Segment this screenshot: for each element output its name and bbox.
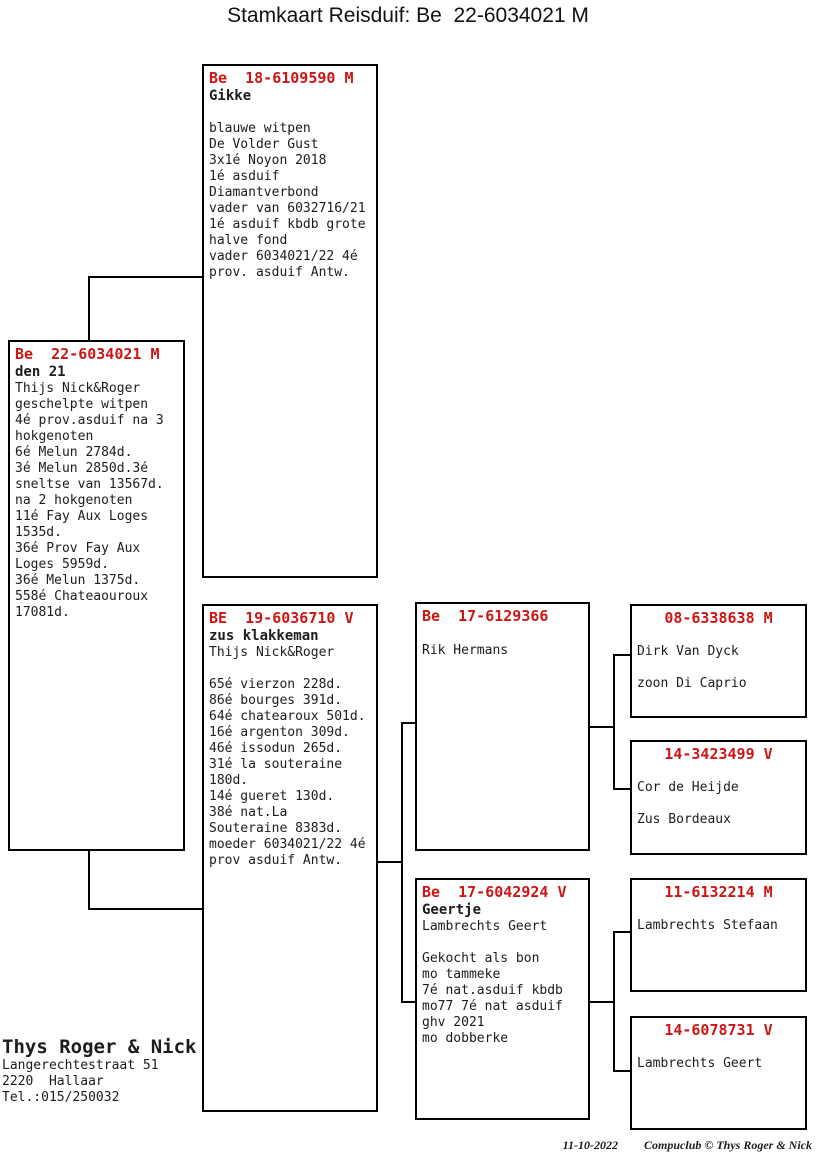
pedigree-box-subject: Be 22-6034021 M den 21 Thijs Nick&Rogerg… [8, 340, 185, 851]
connector-to-ggf-maternal [613, 931, 630, 933]
pedigree-text-line: 3x1é Noyon 2018 [209, 153, 376, 169]
bird-name [417, 626, 588, 643]
pedigree-text-line [209, 661, 376, 677]
pedigree-text-line: Gekocht als bon [422, 951, 588, 967]
connector-to-ggm-paternal [613, 788, 630, 790]
pedigree-text-line: blauwe witpen [209, 121, 376, 137]
bird-notes: Rik Hermans [417, 643, 588, 659]
pedigree-text-line: 558é Chateaouroux [15, 589, 183, 605]
ring-number: Be 22-6034021 M [10, 342, 183, 364]
pedigree-text-line [637, 764, 805, 780]
pedigree-text-line: Thijs Nick&Roger [15, 381, 183, 397]
pedigree-box-ggm-maternal: 14-6078731 V Lambrechts Geert [630, 1016, 807, 1130]
pedigree-box-ggm-paternal: 14-3423499 V Cor de Heijde Zus Bordeaux [630, 740, 807, 855]
connector-to-grandmother [401, 1001, 415, 1003]
ring-number: Be 17-6042924 V [417, 880, 588, 902]
pedigree-text-line: Rik Hermans [422, 643, 588, 659]
connector-grandmother-stub [590, 1001, 615, 1003]
ring-number: 14-3423499 V [632, 742, 805, 764]
bird-name: zus klakkeman [204, 628, 376, 645]
pedigree-text-line: Lambrechts Geert [637, 1056, 805, 1072]
bird-name: den 21 [10, 364, 183, 381]
connector-grandfather-vertical [613, 654, 615, 790]
pedigree-text-line: 7é nat.asduif kbdb [422, 983, 588, 999]
pedigree-text-line: sneltse van 13567d. [15, 477, 183, 493]
pedigree-box-ggf-paternal: 08-6338638 M Dirk Van Dyck zoon Di Capri… [630, 604, 807, 718]
pedigree-text-line: 14é gueret 130d. [209, 789, 376, 805]
connector-to-ggf-paternal [613, 654, 630, 656]
pedigree-box-mother: BE 19-6036710 V zus klakkeman Thijs Nick… [202, 604, 378, 1112]
bird-name: Gikke [204, 88, 376, 105]
pedigree-text-line: Souteraine 8383d. [209, 821, 376, 837]
pedigree-text-line [209, 105, 376, 121]
pedigree-text-line: 16é argenton 309d. [209, 725, 376, 741]
connector-grandmother-vertical [613, 931, 615, 1072]
ring-number: BE 19-6036710 V [204, 606, 376, 628]
connector-mother-horizontal [88, 908, 202, 910]
bird-notes: Cor de Heijde Zus Bordeaux [632, 764, 805, 828]
pedigree-text-line: 36é Prov Fay Aux [15, 541, 183, 557]
pedigree-text-line: Loges 5959d. [15, 557, 183, 573]
connector-father-horizontal [88, 276, 202, 278]
pedigree-text-line: 1535d. [15, 525, 183, 541]
pedigree-text-line: na 2 hokgenoten [15, 493, 183, 509]
pedigree-text-line: 180d. [209, 773, 376, 789]
bird-notes: Lambrechts Geert [632, 1040, 805, 1072]
pedigree-text-line: Dirk Van Dyck [637, 644, 805, 660]
pedigree-text-line [637, 660, 805, 676]
pedigree-box-maternal-grandmother: Be 17-6042924 V Geertje Lambrechts Geert… [415, 878, 590, 1120]
footer-credit: Compuclub © Thys Roger & Nick [644, 1138, 812, 1153]
pedigree-text-line [637, 1040, 805, 1056]
pedigree-text-line [637, 628, 805, 644]
pedigree-text-line: 36é Melun 1375d. [15, 573, 183, 589]
pedigree-text-line [637, 796, 805, 812]
bird-notes: blauwe witpenDe Volder Gust3x1é Noyon 20… [204, 105, 376, 281]
owner-block: Thys Roger & Nick Langerechtestraat 51 2… [2, 1036, 196, 1106]
pedigree-text-line: De Volder Gust [209, 137, 376, 153]
connector-to-grandfather [401, 722, 415, 724]
pedigree-text-line: halve fond [209, 233, 376, 249]
bird-notes: Dirk Van Dyck zoon Di Caprio [632, 628, 805, 692]
page-title: Stamkaart Reisduif: Be 22-6034021 M [0, 4, 816, 28]
connector-grandparents-stub [378, 861, 403, 863]
owner-address-line2: 2220 Hallaar [2, 1074, 196, 1090]
ring-number: Be 17-6129366 [417, 604, 588, 626]
pedigree-text-line [637, 902, 805, 918]
bird-notes: Thijs Nick&Rogergeschelpte witpen4é prov… [10, 381, 183, 621]
pedigree-box-ggf-maternal: 11-6132214 M Lambrechts Stefaan [630, 878, 807, 992]
pedigree-text-line: 4é prov.asduif na 3 [15, 413, 183, 429]
pedigree-text-line: 3é Melun 2850d.3é [15, 461, 183, 477]
pedigree-text-line: Lambrechts Geert [422, 919, 588, 935]
connector-father-vertical [88, 276, 90, 340]
pedigree-text-line: prov asduif Antw. [209, 853, 376, 869]
bird-notes: Thijs Nick&Roger 65é vierzon 228d.86é bo… [204, 645, 376, 869]
pedigree-card: Stamkaart Reisduif: Be 22-6034021 M Be 1… [0, 0, 816, 1172]
pedigree-text-line: 1é asduif [209, 169, 376, 185]
pedigree-text-line: 11é Fay Aux Loges [15, 509, 183, 525]
pedigree-text-line: Cor de Heijde [637, 780, 805, 796]
pedigree-text-line: geschelpte witpen [15, 397, 183, 413]
pedigree-text-line: 1é asduif kbdb grote [209, 217, 376, 233]
bird-notes: Lambrechts Geert Gekocht als bonmo tamme… [417, 919, 588, 1047]
pedigree-text-line: hokgenoten [15, 429, 183, 445]
pedigree-box-father: Be 18-6109590 M Gikke blauwe witpenDe Vo… [202, 64, 378, 578]
pedigree-text-line: 65é vierzon 228d. [209, 677, 376, 693]
pedigree-text-line: moeder 6034021/22 4é [209, 837, 376, 853]
pedigree-text-line: Lambrechts Stefaan [637, 918, 805, 934]
owner-name: Thys Roger & Nick [2, 1036, 196, 1058]
pedigree-text-line: 38é nat.La [209, 805, 376, 821]
connector-grandfather-stub [590, 726, 615, 728]
pedigree-text-line: ghv 2021 [422, 1015, 588, 1031]
ring-number: Be 18-6109590 M [204, 66, 376, 88]
ring-number: 11-6132214 M [632, 880, 805, 902]
pedigree-text-line: 31é la souteraine [209, 757, 376, 773]
connector-grandparents-vertical [401, 722, 403, 1003]
pedigree-text-line: mo tammeke [422, 967, 588, 983]
bird-name: Geertje [417, 902, 588, 919]
pedigree-text-line: 86é bourges 391d. [209, 693, 376, 709]
bird-notes: Lambrechts Stefaan [632, 902, 805, 934]
pedigree-text-line: zoon Di Caprio [637, 676, 805, 692]
connector-to-ggm-maternal [613, 1070, 630, 1072]
pedigree-box-maternal-grandfather: Be 17-6129366 Rik Hermans [415, 602, 590, 851]
owner-phone: Tel.:015/250032 [2, 1090, 196, 1106]
ring-number: 14-6078731 V [632, 1018, 805, 1040]
pedigree-text-line: Thijs Nick&Roger [209, 645, 376, 661]
pedigree-text-line: Zus Bordeaux [637, 812, 805, 828]
pedigree-text-line: vader van 6032716/21 [209, 201, 376, 217]
pedigree-text-line: 46é issodun 265d. [209, 741, 376, 757]
owner-address-line1: Langerechtestraat 51 [2, 1058, 196, 1074]
footer-date: 11-10-2022 [563, 1138, 618, 1153]
ring-number: 08-6338638 M [632, 606, 805, 628]
pedigree-text-line: 6é Melun 2784d. [15, 445, 183, 461]
pedigree-text-line: prov. asduif Antw. [209, 265, 376, 281]
pedigree-text-line: Diamantverbond [209, 185, 376, 201]
pedigree-text-line [422, 935, 588, 951]
pedigree-text-line: 64é chatearoux 501d. [209, 709, 376, 725]
connector-mother-vertical [88, 851, 90, 910]
footer: 11-10-2022 Compuclub © Thys Roger & Nick [563, 1138, 812, 1153]
pedigree-text-line: 17081d. [15, 605, 183, 621]
pedigree-text-line: mo77 7é nat asduif [422, 999, 588, 1015]
pedigree-text-line: vader 6034021/22 4é [209, 249, 376, 265]
pedigree-text-line: mo dobberke [422, 1031, 588, 1047]
